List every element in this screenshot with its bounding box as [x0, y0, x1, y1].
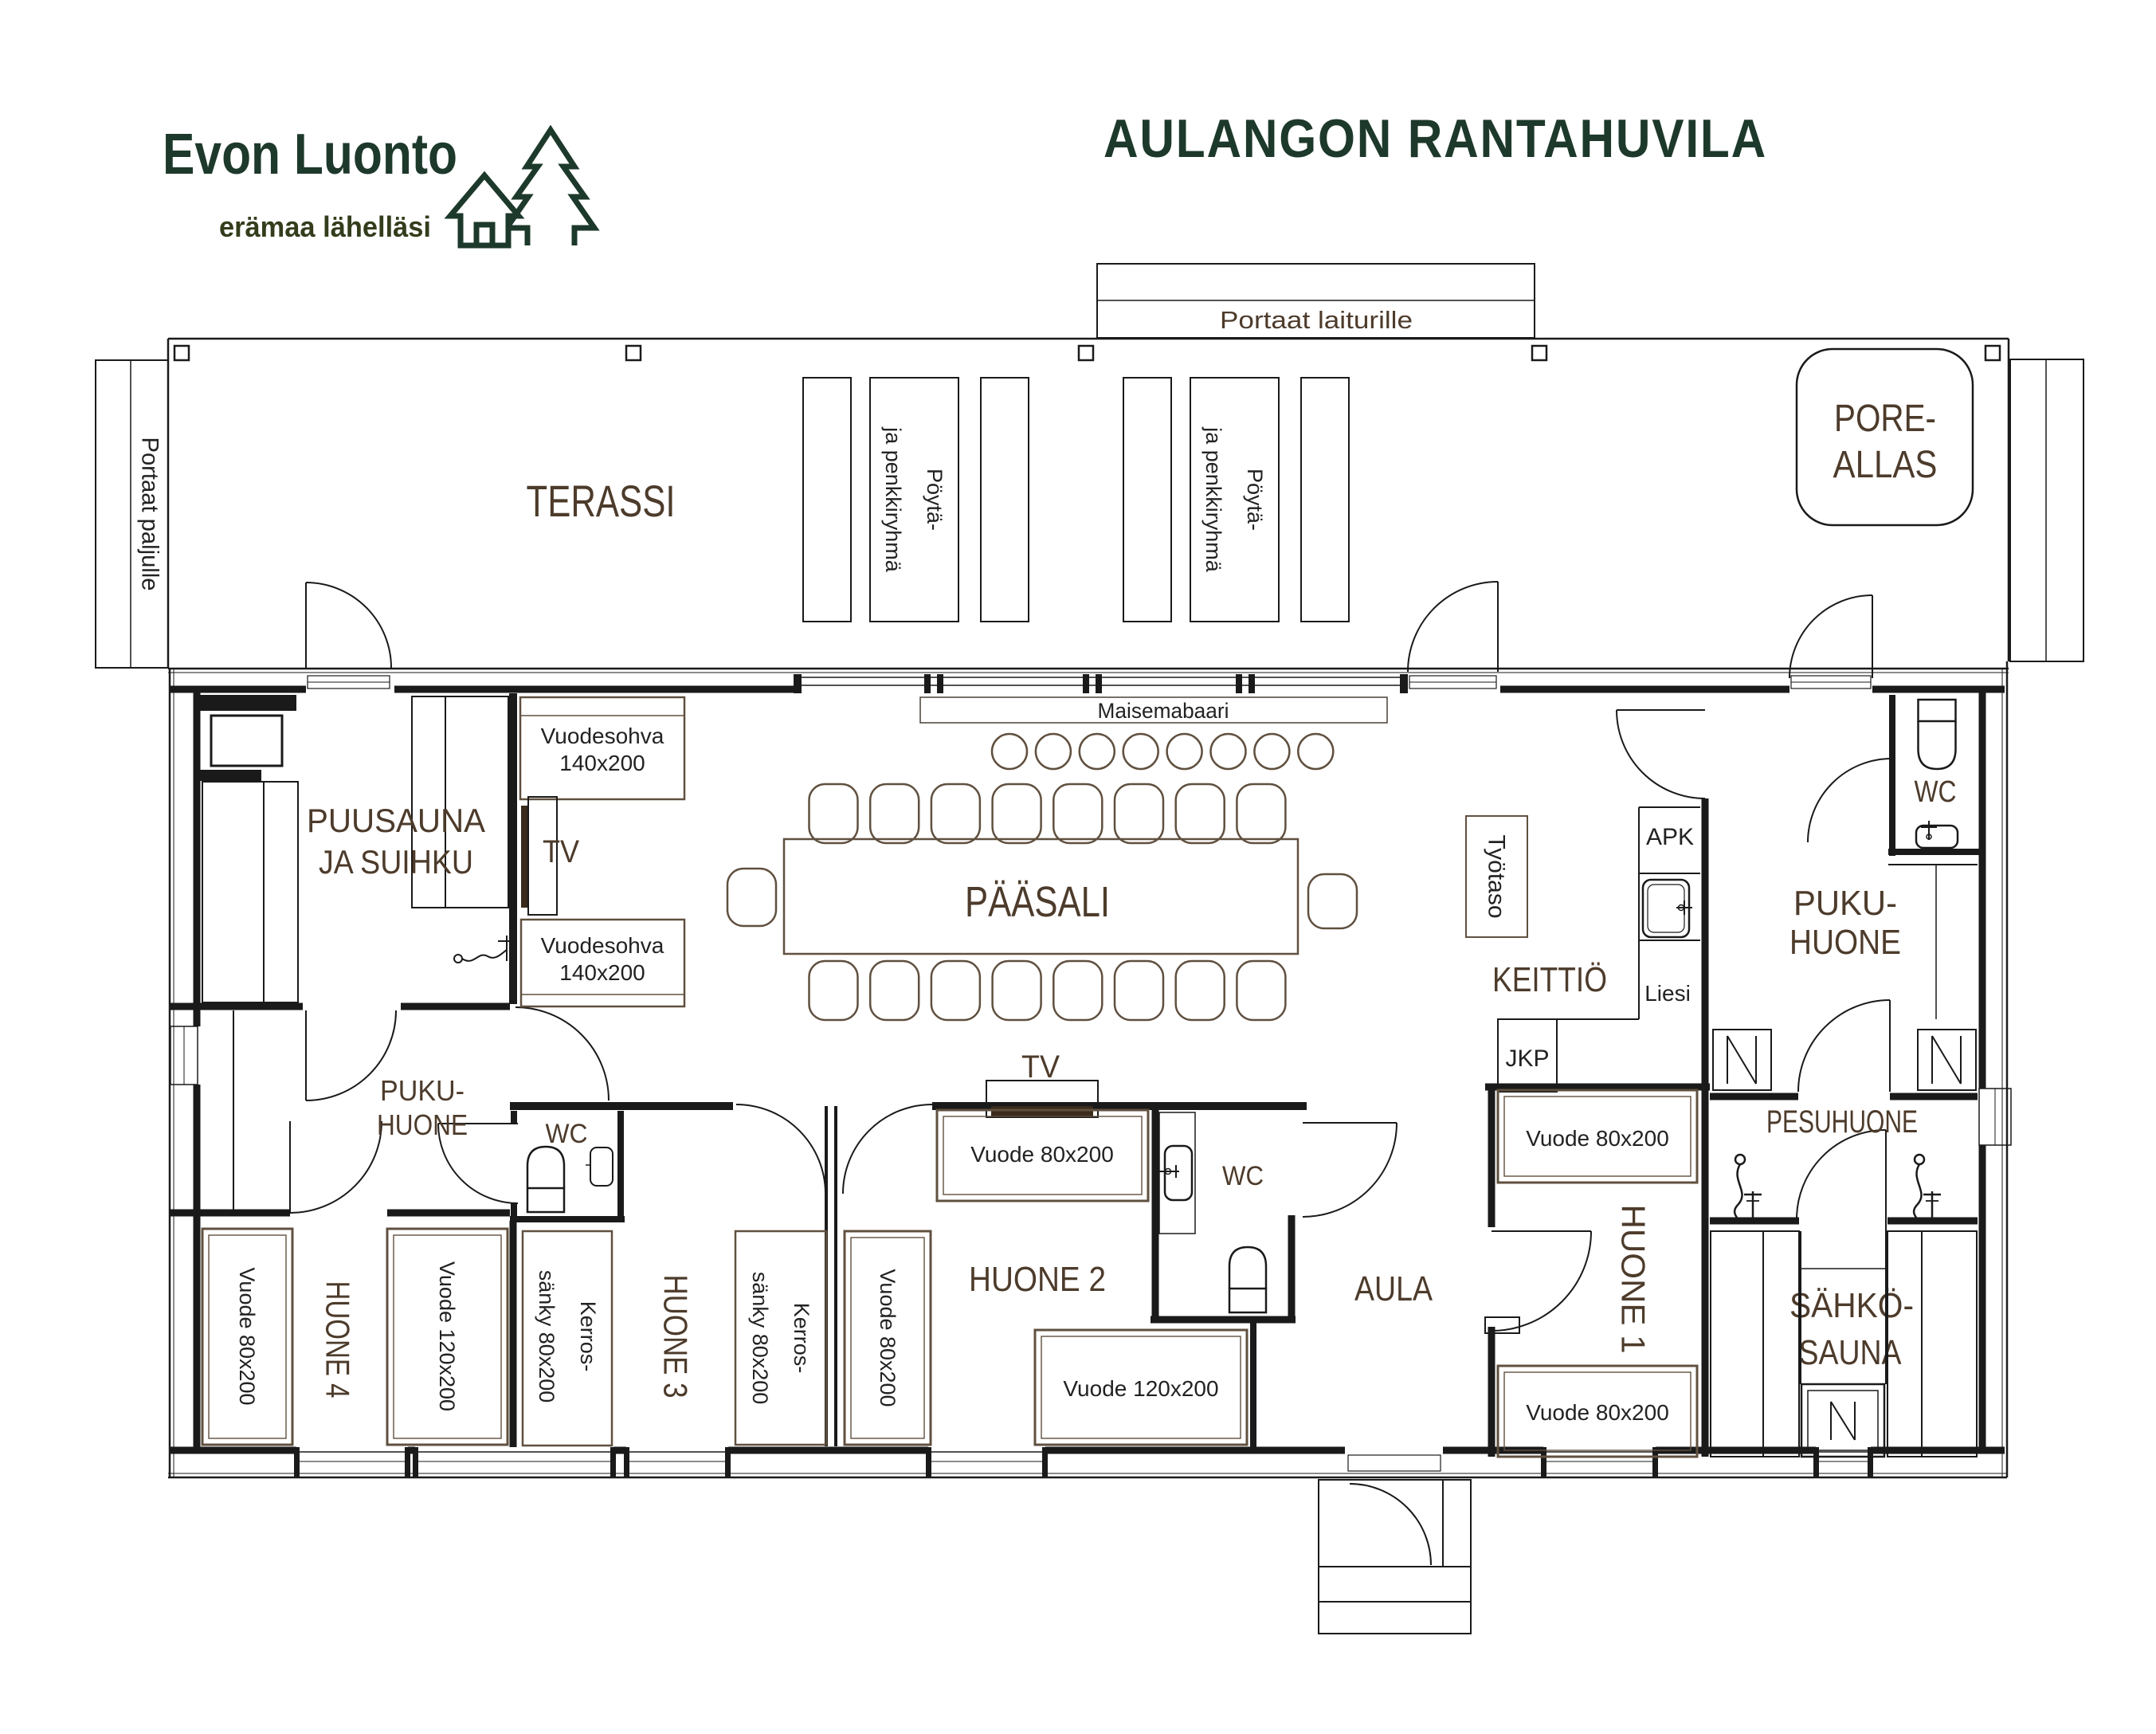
svg-text:Kerros-: Kerros- — [790, 1303, 813, 1374]
svg-text:TV: TV — [1021, 1049, 1060, 1085]
svg-text:ja penkkiryhmä: ja penkkiryhmä — [881, 426, 905, 573]
svg-text:Pöytä-: Pöytä- — [1243, 469, 1267, 531]
svg-text:Vuode 80x200: Vuode 80x200 — [876, 1269, 900, 1406]
svg-text:HUONE 1: HUONE 1 — [1615, 1205, 1652, 1354]
svg-text:PUUSAUNA: PUUSAUNA — [307, 802, 485, 839]
svg-text:PÄÄSALI: PÄÄSALI — [965, 878, 1110, 926]
svg-text:140x200: 140x200 — [559, 960, 645, 985]
svg-text:erämaa lähelläsi: erämaa lähelläsi — [219, 210, 431, 243]
svg-text:Pöytä-: Pöytä- — [923, 469, 947, 531]
svg-text:ALLAS: ALLAS — [1833, 444, 1938, 486]
svg-text:Vuode 80x200: Vuode 80x200 — [1526, 1126, 1669, 1151]
svg-text:Vuode 120x200: Vuode 120x200 — [1063, 1376, 1218, 1401]
svg-text:Kerros-: Kerros- — [576, 1301, 600, 1372]
svg-text:PUKU-: PUKU- — [1793, 884, 1897, 923]
svg-text:140x200: 140x200 — [559, 751, 645, 775]
svg-text:HUONE: HUONE — [377, 1108, 468, 1141]
svg-text:WC: WC — [546, 1119, 588, 1149]
svg-text:Vuode 120x200: Vuode 120x200 — [435, 1261, 459, 1411]
svg-text:PESUHUONE: PESUHUONE — [1766, 1104, 1918, 1140]
svg-text:HUONE: HUONE — [1789, 923, 1901, 962]
svg-text:Portaat laiturille: Portaat laiturille — [1220, 306, 1413, 334]
svg-text:HUONE 2: HUONE 2 — [969, 1260, 1106, 1299]
svg-text:HUONE 3: HUONE 3 — [657, 1275, 695, 1399]
svg-text:Liesi: Liesi — [1644, 981, 1691, 1006]
svg-text:AULANGON RANTAHUVILA: AULANGON RANTAHUVILA — [1103, 108, 1767, 169]
svg-text:WC: WC — [1915, 775, 1957, 809]
svg-text:WC: WC — [1222, 1161, 1264, 1191]
svg-text:Evon Luonto: Evon Luonto — [163, 123, 457, 186]
svg-text:Vuode 80x200: Vuode 80x200 — [1526, 1400, 1669, 1425]
svg-text:Vuodesohva: Vuodesohva — [541, 724, 664, 748]
svg-text:PUKU-: PUKU- — [380, 1074, 465, 1107]
svg-text:HUONE 4: HUONE 4 — [319, 1281, 357, 1399]
svg-text:Vuode 80x200: Vuode 80x200 — [970, 1142, 1114, 1167]
svg-text:sänky 80x200: sänky 80x200 — [748, 1272, 772, 1405]
svg-text:Vuode 80x200: Vuode 80x200 — [235, 1267, 259, 1405]
svg-text:Työtaso: Työtaso — [1484, 834, 1510, 918]
svg-text:ja penkkiryhmä: ja penkkiryhmä — [1201, 426, 1225, 573]
svg-text:TERASSI: TERASSI — [527, 476, 676, 526]
svg-text:PORE-: PORE- — [1834, 398, 1936, 440]
svg-text:SÄHKÖ-: SÄHKÖ- — [1789, 1286, 1914, 1325]
svg-text:Maisemabaari: Maisemabaari — [1098, 699, 1229, 723]
svg-text:TV: TV — [543, 834, 579, 869]
svg-text:Vuodesohva: Vuodesohva — [541, 933, 664, 958]
svg-text:AULA: AULA — [1354, 1269, 1433, 1308]
svg-text:sänky 80x200: sänky 80x200 — [535, 1270, 559, 1403]
svg-text:JKP: JKP — [1505, 1045, 1549, 1072]
svg-text:JA SUIHKU: JA SUIHKU — [319, 843, 473, 881]
svg-text:Portaat paljulle: Portaat paljulle — [137, 437, 163, 591]
svg-text:KEITTIÖ: KEITTIÖ — [1492, 960, 1607, 999]
svg-text:APK: APK — [1646, 824, 1694, 850]
